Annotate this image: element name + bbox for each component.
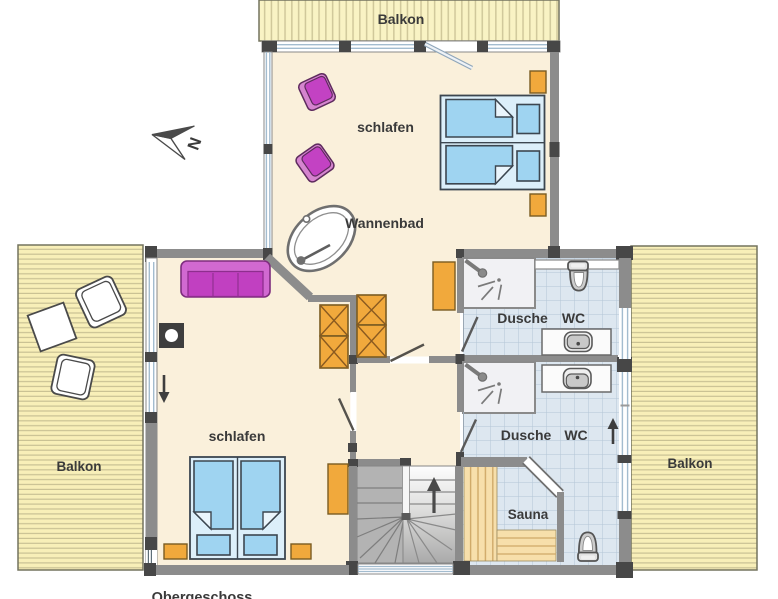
svg-text:Sauna: Sauna (508, 507, 549, 522)
svg-text:Dusche: Dusche (497, 310, 548, 326)
svg-text:Dusche: Dusche (501, 427, 552, 443)
svg-text:Balkon: Balkon (56, 459, 101, 474)
svg-text:WC: WC (562, 310, 585, 326)
svg-text:Obergeschoss: Obergeschoss (152, 590, 253, 599)
svg-text:schlafen: schlafen (357, 119, 414, 135)
svg-text:WC: WC (564, 427, 587, 443)
svg-text:schlafen: schlafen (209, 428, 266, 444)
svg-text:Balkon: Balkon (378, 11, 425, 27)
svg-text:Wannenbad: Wannenbad (345, 215, 424, 231)
svg-text:Balkon: Balkon (667, 456, 712, 471)
